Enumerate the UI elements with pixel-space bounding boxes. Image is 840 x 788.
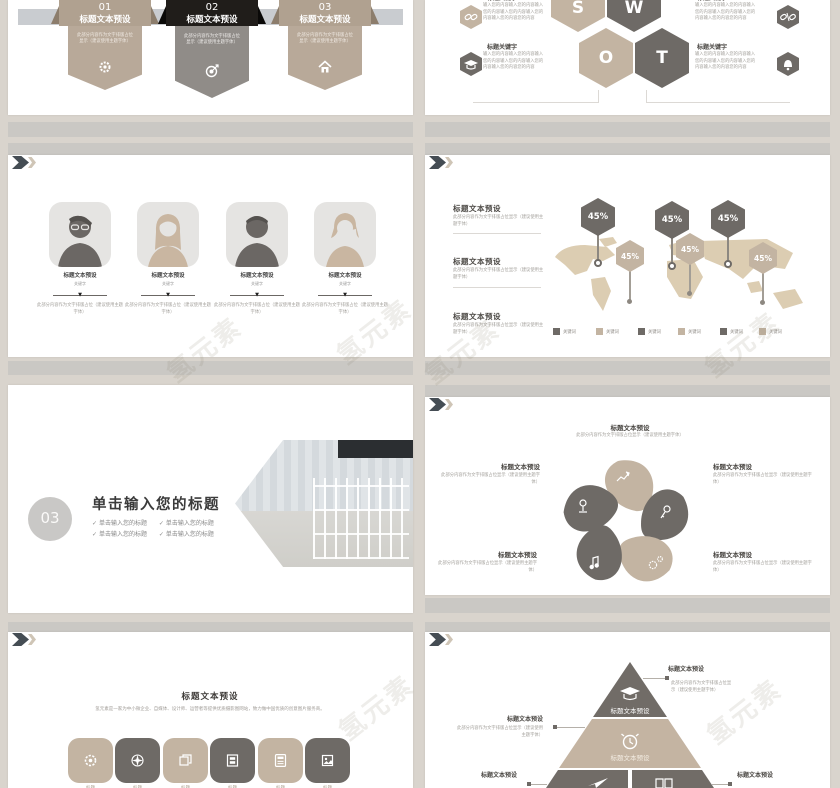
member-sub: 关键字 (40, 281, 120, 287)
photo-dark-windows (338, 440, 413, 458)
member-body: 此部分内容作为文字排版占位（建议使用主题字体） (302, 303, 388, 316)
legend-swatch (596, 328, 603, 335)
chevron-down-icon: ▼ (40, 292, 120, 298)
avatar (49, 202, 111, 267)
agenda-number: 02 (166, 2, 258, 13)
marker-stem (727, 237, 729, 262)
broken-link-icon (777, 5, 799, 29)
member-title: 标题文本预设 (217, 271, 297, 279)
avatar (314, 202, 376, 267)
swot-block-body: 输入您的内容输入您的内容输入您的内容输入您的内容输入您的内容输入您的内容您的内容 (483, 3, 545, 23)
section-number-circle: 03 (28, 497, 72, 541)
member-title: 标题文本预设 (40, 271, 120, 279)
legend-label: 关键词 (688, 329, 701, 335)
service-tile (258, 738, 303, 783)
swot-letter: O (579, 48, 633, 68)
chevron-decor-icon (28, 634, 36, 645)
chevron-down-icon: ▼ (217, 292, 297, 298)
swot-hexagon-s: S (551, 0, 605, 32)
chevron-decor-icon (445, 157, 453, 168)
member-body: 此部分内容作为文字排版占位（建议使用主题字体） (214, 303, 300, 316)
cover-bullet: 单击输入您的标题 (166, 520, 214, 527)
cycle-body: 此部分内容作为文字排版占位显示（建议使用主题字体） (437, 561, 537, 574)
service-tile (305, 738, 350, 783)
swot-letter: W (607, 0, 661, 18)
letterbox-band (425, 361, 830, 375)
marker-stem (629, 271, 631, 300)
letterbox-band (8, 622, 413, 632)
member-sub: 关键字 (128, 281, 208, 287)
letterbox-band (425, 598, 830, 613)
agenda-body-text: 此部分内容作为文字排版占位显示（建议使用主题字体） (295, 33, 355, 46)
cycle-body: 此部分内容作为文字排版占位显示（建议使用主题字体） (713, 473, 813, 486)
chevron-down-icon: ▼ (128, 292, 208, 298)
chevron-decor-icon (12, 633, 29, 646)
legend-item: 关键词 (638, 328, 661, 335)
pyramid-callout-heading: 标题文本预设 (737, 770, 773, 779)
slide-thumbnail-pyramid[interactable]: 标题文本预设 标题文本预设 标题文本预设 此部分内容作为文字排版占位显示（建议使… (425, 632, 830, 788)
pyramid-callout-heading: 标题文本预设 (455, 714, 543, 723)
template-preview-page: 01 标题文本预设 此部分内容作为文字排版占位显示（建议使用主题字体） 02 标… (0, 0, 840, 788)
connector-line (643, 678, 667, 679)
swot-block-body: 输入您的内容输入您的内容输入您的内容输入您的内容输入您的内容输入您的内容您的内容 (483, 52, 545, 72)
marker-stem (689, 264, 691, 292)
swot-block-body: 输入您的内容输入您的内容输入您的内容输入您的内容输入您的内容输入您的内容您的内容 (695, 3, 757, 23)
swot-letter: S (551, 0, 605, 18)
legend-label: 关键词 (730, 329, 743, 335)
marker-ring (668, 262, 676, 270)
cover-bullet-row: ✓ 单击输入您的标题 ✓ 单击输入您的标题 (92, 529, 214, 538)
legend-label: 关键词 (606, 329, 619, 335)
cycle-heading: 标题文本预设 (570, 422, 690, 432)
window-icon (225, 753, 240, 768)
chevron-decor-icon (445, 399, 453, 410)
agenda-banner-body: 此部分内容作为文字排版占位显示（建议使用主题字体） (288, 26, 362, 90)
swot-hexagon-w: W (607, 0, 661, 32)
marker-dot (687, 291, 692, 296)
check-icon: ✓ (159, 520, 164, 527)
service-tile (163, 738, 208, 783)
legend-swatch (553, 328, 560, 335)
photo-fence (313, 478, 409, 559)
pyramid-diagram: 标题文本预设 标题文本预设 (540, 658, 720, 788)
cycle-heading: 标题文本预设 (713, 461, 813, 471)
pyramid-callout-body: 此部分内容作为文字排版占位显示（建议使用主题字体） (671, 681, 733, 694)
service-tile (115, 738, 160, 783)
agenda-banner-body: 此部分内容作为文字排版占位显示（建议使用主题字体） (175, 26, 249, 98)
cycle-heading: 标题文本预设 (440, 461, 540, 471)
agenda-body-text: 此部分内容作为文字排版占位显示（建议使用主题字体） (75, 33, 135, 46)
graduation-cap-icon (460, 52, 482, 76)
marker-stem (671, 238, 673, 264)
letterbox-band (425, 143, 830, 155)
connector-line (712, 784, 728, 785)
connector-line (531, 784, 547, 785)
swot-icon-hex (777, 52, 799, 76)
divider (453, 287, 541, 288)
chevron-decor-icon (12, 156, 29, 169)
chevron-decor-icon (28, 157, 36, 168)
agenda-title: 标题文本预设 (166, 13, 258, 25)
services-heading: 标题文本预设 (110, 690, 310, 702)
swot-block-body: 输入您的内容输入您的内容输入您的内容输入您的内容输入您的内容输入您的内容您的内容 (695, 52, 757, 72)
calculator-icon (273, 753, 288, 768)
agenda-body-text: 此部分内容作为文字排版占位显示（建议使用主题字体） (182, 34, 242, 47)
photo-icon (320, 753, 335, 768)
cover-bullet-row: ✓ 单击输入您的标题 ✓ 单击输入您的标题 (92, 518, 214, 527)
service-tile (68, 738, 113, 783)
letterbox-band (8, 122, 413, 137)
cycle-body: 此部分内容作为文字排版占位显示（建议使用主题字体） (565, 433, 695, 440)
chevron-decor-icon (429, 398, 446, 411)
pyramid-callout-heading: 标题文本预设 (668, 664, 704, 673)
letterbox-band (8, 361, 413, 375)
marker-stem (762, 273, 764, 301)
compass-icon (130, 753, 145, 768)
female-short-hair-avatar-icon (314, 202, 376, 267)
slide-thumbnail-agenda[interactable]: 01 标题文本预设 此部分内容作为文字排版占位显示（建议使用主题字体） 02 标… (8, 0, 413, 115)
avatar (226, 202, 288, 267)
section-number: 03 (28, 509, 72, 527)
pyramid-bottom-left-cell (546, 770, 628, 788)
agenda-number: 01 (59, 2, 151, 13)
letterbox-band (8, 143, 413, 155)
member-body: 此部分内容作为文字排版占位（建议使用主题字体） (37, 303, 123, 316)
pyramid-callout-body: 此部分内容作为文字排版占位显示（建议使用主题字体） (455, 726, 543, 739)
female-long-hair-avatar-icon (137, 202, 199, 267)
swot-letter: T (635, 48, 689, 68)
legend-swatch (678, 328, 685, 335)
link-icon (460, 5, 482, 29)
letterbox-band (425, 385, 830, 397)
agenda-banner-header: 02 标题文本预设 (166, 0, 258, 26)
member-body: 此部分内容作为文字排版占位（建议使用主题字体） (125, 303, 211, 316)
pinwheel-diagram (561, 459, 691, 589)
connector-dot (665, 676, 669, 680)
chevron-decor-icon (429, 156, 446, 169)
services-body: 氢元素是一家为中小微企业、自媒体、设计师、运营者等提供优质摄影图网站，致力做中国… (60, 706, 360, 714)
letterbox-band (425, 122, 830, 137)
slide-thumbnail-services[interactable]: 标题文本预设 氢元素是一家为中小微企业、自媒体、设计师、运营者等提供优质摄影图网… (8, 632, 413, 788)
cycle-body: 此部分内容作为文字排版占位显示（建议使用主题字体） (713, 561, 813, 574)
map-block-body: 此部分内容作为文字排版占位显示（建议使用主题字体） (453, 323, 545, 336)
swot-icon-hex (460, 52, 482, 76)
agenda-banner-body: 此部分内容作为文字排版占位显示（建议使用主题字体） (68, 26, 142, 90)
connector-line (473, 102, 599, 103)
cover-bullet: 单击输入您的标题 (99, 531, 147, 538)
male-avatar-icon (226, 202, 288, 267)
chevron-down-icon: ▼ (305, 292, 385, 298)
swot-block-heading: 标题关键字 (697, 42, 727, 51)
agenda-banner-header: 03 标题文本预设 (279, 0, 371, 26)
connector-line (646, 102, 790, 103)
male-glasses-avatar-icon (49, 202, 111, 267)
slide-thumbnail-team[interactable]: 标题文本预设 标题文本预设 标题文本预设 标题文本预设 关键字 关键字 关键字 … (8, 155, 413, 357)
copy-icon (178, 753, 193, 768)
swot-icon-hex (777, 5, 799, 29)
check-icon: ✓ (92, 531, 97, 538)
legend-swatch (638, 328, 645, 335)
map-block-body: 此部分内容作为文字排版占位显示（建议使用主题字体） (453, 268, 545, 281)
legend-label: 关键词 (769, 329, 782, 335)
slide-thumbnail-swot[interactable]: S W O T 标题关键字 输入您的内容输入您的内容输入您的内容输入您的内容输入… (425, 0, 830, 115)
agenda-banner-header: 01 标题文本预设 (59, 0, 151, 26)
slide-thumbnail-map[interactable]: 标题文本预设 此部分内容作为文字排版占位显示（建议使用主题字体） 标题文本预设 … (425, 155, 830, 357)
letterbox-band (425, 622, 830, 632)
legend-swatch (759, 328, 766, 335)
pyramid-top-label: 标题文本预设 (611, 706, 651, 715)
cycle-body: 此部分内容作为文字排版占位显示（建议使用主题字体） (440, 473, 540, 486)
bell-icon (777, 52, 799, 76)
pyramid-middle-label: 标题文本预设 (611, 753, 651, 762)
legend-swatch (720, 328, 727, 335)
agenda-title: 标题文本预设 (59, 13, 151, 25)
legend-label: 关键词 (648, 329, 661, 335)
cover-bullet: 单击输入您的标题 (166, 531, 214, 538)
chevron-decor-icon (445, 634, 453, 645)
swot-block-heading: 标题关键字 (487, 42, 517, 51)
pyramid-callout-heading: 标题文本预设 (481, 770, 517, 779)
cover-title: 单击输入您的标题 (92, 493, 220, 514)
cover-bullet: 单击输入您的标题 (99, 520, 147, 527)
swot-hexagon-t: T (635, 28, 689, 88)
chevron-decor-icon (429, 633, 446, 646)
legend-item: 关键词 (759, 328, 782, 335)
check-icon: ✓ (92, 520, 97, 527)
legend-item: 关键词 (596, 328, 619, 335)
member-sub: 关键字 (217, 281, 297, 287)
check-icon: ✓ (159, 531, 164, 538)
marker-stem (597, 235, 599, 261)
home-icon (318, 60, 332, 74)
member-sub: 关键字 (305, 281, 385, 287)
legend-item: 关键词 (553, 328, 576, 335)
connector-dot (728, 782, 732, 786)
map-block-heading: 标题文本预设 (453, 256, 501, 267)
swot-block-heading: 标题关键字 (487, 0, 517, 2)
map-block-body: 此部分内容作为文字排版占位显示（建议使用主题字体） (453, 215, 545, 228)
member-title: 标题文本预设 (128, 271, 208, 279)
marker-ring (724, 260, 732, 268)
divider (453, 233, 541, 234)
map-block-heading: 标题文本预设 (453, 203, 501, 214)
gear-icon (83, 753, 98, 768)
swot-icon-hex (460, 5, 482, 29)
connector-line (557, 727, 585, 728)
marker-dot (760, 300, 765, 305)
map-block-heading: 标题文本预设 (453, 311, 501, 322)
agenda-title: 标题文本预设 (279, 13, 371, 25)
cycle-heading: 标题文本预设 (437, 549, 537, 559)
legend-label: 关键词 (563, 329, 576, 335)
avatar (137, 202, 199, 267)
agenda-number: 03 (279, 2, 371, 13)
service-tile (210, 738, 255, 783)
member-title: 标题文本预设 (305, 271, 385, 279)
legend-item: 关键词 (678, 328, 701, 335)
marker-ring (594, 259, 602, 267)
swot-block-heading: 标题关键字 (697, 0, 727, 2)
marker-dot (627, 299, 632, 304)
swot-hexagon-o: O (579, 28, 633, 88)
slide-thumbnail-cover[interactable]: 03 单击输入您的标题 ✓ 单击输入您的标题 ✓ 单击输入您的标题 ✓ 单击输入… (8, 385, 413, 613)
legend-item: 关键词 (720, 328, 743, 335)
building-photo (235, 440, 413, 567)
pyramid-bottom-right-cell (632, 770, 714, 788)
slide-thumbnail-cycle[interactable]: 标题文本预设 此部分内容作为文字排版占位显示（建议使用主题字体） 标题文本预设 … (425, 397, 830, 595)
target-icon (205, 64, 219, 78)
gear-icon (98, 60, 112, 74)
cycle-heading: 标题文本预设 (713, 549, 813, 559)
